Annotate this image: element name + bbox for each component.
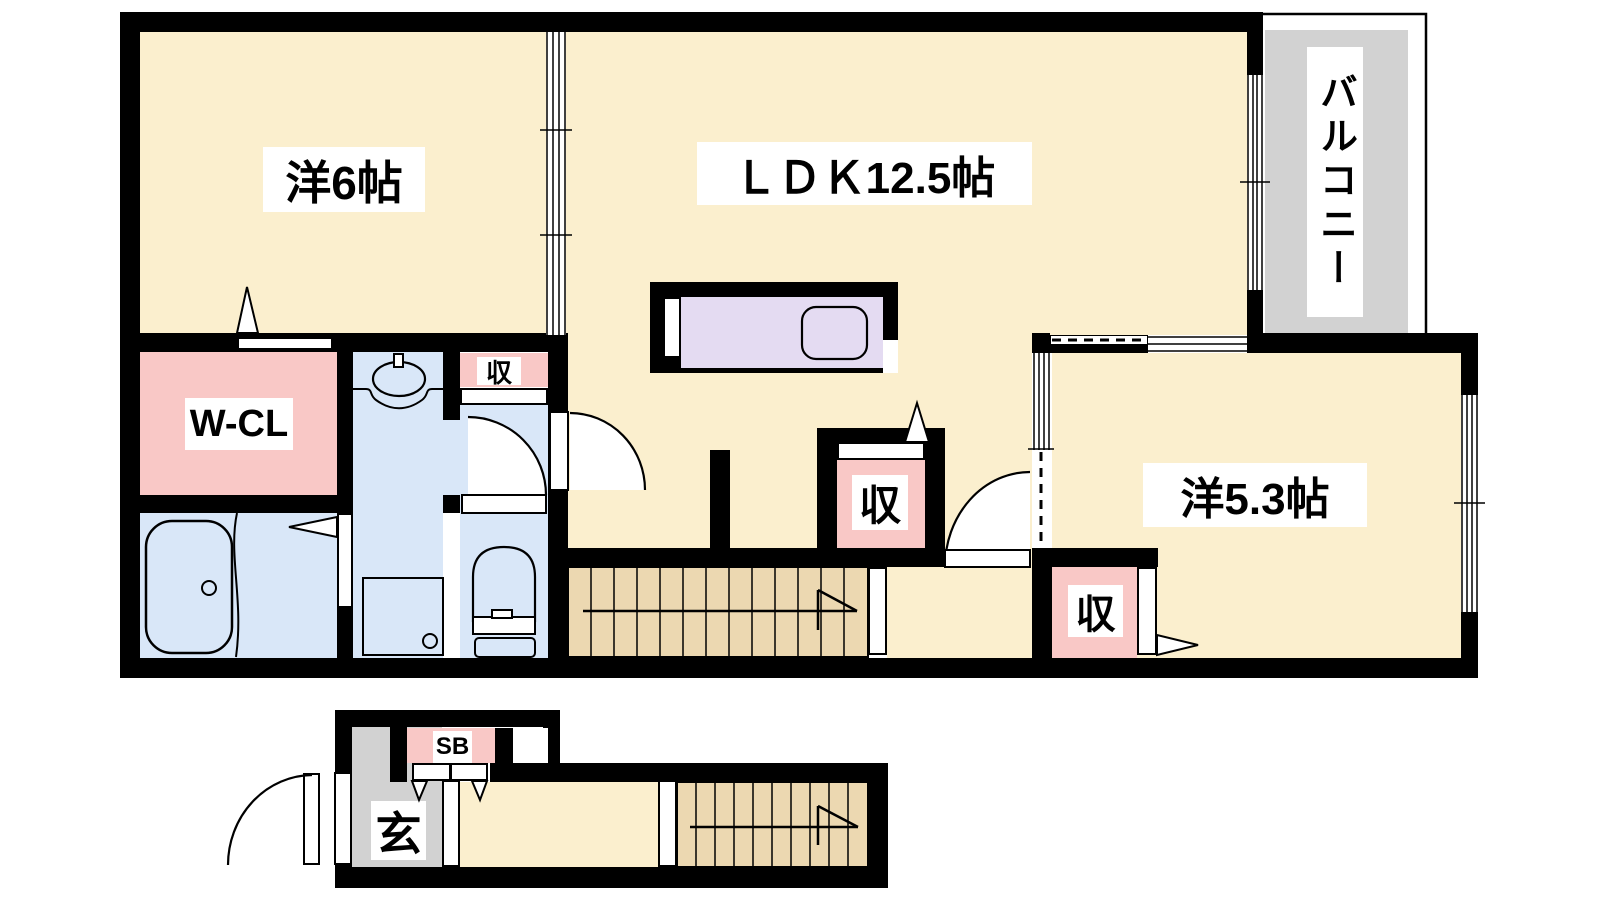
door-53-slider: [1033, 450, 1050, 548]
window-53-left: [1033, 353, 1050, 450]
corridor-threshold-low: [658, 780, 677, 867]
closet-ldk-top: [817, 428, 945, 442]
label-genkan: 玄: [371, 801, 426, 860]
sb-divider: [495, 728, 513, 763]
label-balcony: バルコニー: [1307, 47, 1363, 317]
entry-door-jamb: [334, 772, 352, 865]
corridor-lower: [460, 782, 658, 867]
entry-door-leaf: [303, 773, 320, 865]
wall-stairs-top: [568, 548, 945, 567]
wall-kitchen-stub: [710, 450, 730, 550]
label-ldk: ＬＤＫ12.5帖: [697, 142, 1032, 205]
stairs-upper: [568, 567, 868, 658]
floorplan: 洋6帖 ＬＤＫ12.5帖 洋5.3帖 W-CL バルコニー 収 収 収 玄 SB: [0, 0, 1600, 900]
wall-vert-548: [548, 333, 568, 658]
closet-53-top-slider: [1050, 335, 1148, 345]
closet-ldk-left: [817, 442, 837, 548]
wall-left: [120, 12, 140, 678]
door-bath: [337, 513, 353, 608]
kitchen-counter-gap: [883, 340, 898, 373]
label-storage-ldk: 収: [852, 475, 908, 530]
door-wcl: [237, 337, 333, 350]
kitchen-counter-purple: [681, 297, 883, 368]
label-storage-washroom: 収: [477, 357, 521, 385]
lower-wall-left-a: [335, 710, 352, 772]
stairs-upper-threshold: [868, 567, 887, 655]
label-wcl: W-CL: [185, 398, 293, 450]
label-western6: 洋6帖: [263, 147, 425, 212]
wall-gap-blue: [443, 420, 460, 495]
wall-washroom-toilet-a: [443, 352, 460, 420]
closet-washroom-door: [460, 388, 548, 405]
doorway-zone: [945, 548, 1032, 567]
closet-53-door: [1137, 567, 1157, 655]
kitchen-burner-slot: [663, 297, 681, 358]
shoebox-door-1: [412, 763, 451, 781]
stairs-lower: [677, 782, 868, 867]
wall-washroom-toilet-b: [443, 495, 460, 513]
lower-wall-mid: [490, 763, 872, 782]
closet-ldk-right: [925, 442, 945, 548]
lower-wall-top: [335, 710, 560, 727]
room-bath: [140, 513, 337, 658]
wall-53-corner: [1032, 333, 1050, 353]
genkan-stub: [390, 727, 407, 782]
wall-53-top-thin: [1050, 345, 1148, 353]
wall-bottom: [120, 658, 1478, 678]
label-shoebox: SB: [433, 731, 472, 763]
hall-corridor: [887, 567, 1032, 658]
label-western53: 洋5.3帖: [1143, 463, 1367, 527]
genkan-opening: [513, 728, 548, 763]
window-53-top: [1148, 335, 1247, 353]
room-washroom: [353, 352, 443, 658]
wall-top: [120, 12, 1263, 32]
wall-53-top: [1247, 333, 1461, 353]
wall-mid-horizontal: [140, 333, 568, 352]
genkan-step: [442, 780, 460, 867]
room-toilet: [460, 405, 548, 658]
shoebox-door-2: [450, 763, 488, 781]
wall-below-wcl: [140, 495, 353, 513]
door-entry-arc: [228, 775, 312, 865]
closet-53-top: [1032, 548, 1158, 567]
closet-ldk-door: [837, 442, 925, 460]
window-balcony: [1247, 75, 1263, 290]
window-53-right: [1461, 395, 1478, 612]
partition-yo6-ldk: [546, 32, 566, 335]
lower-wall-bottom: [335, 867, 888, 888]
label-storage-53: 収: [1068, 585, 1123, 637]
